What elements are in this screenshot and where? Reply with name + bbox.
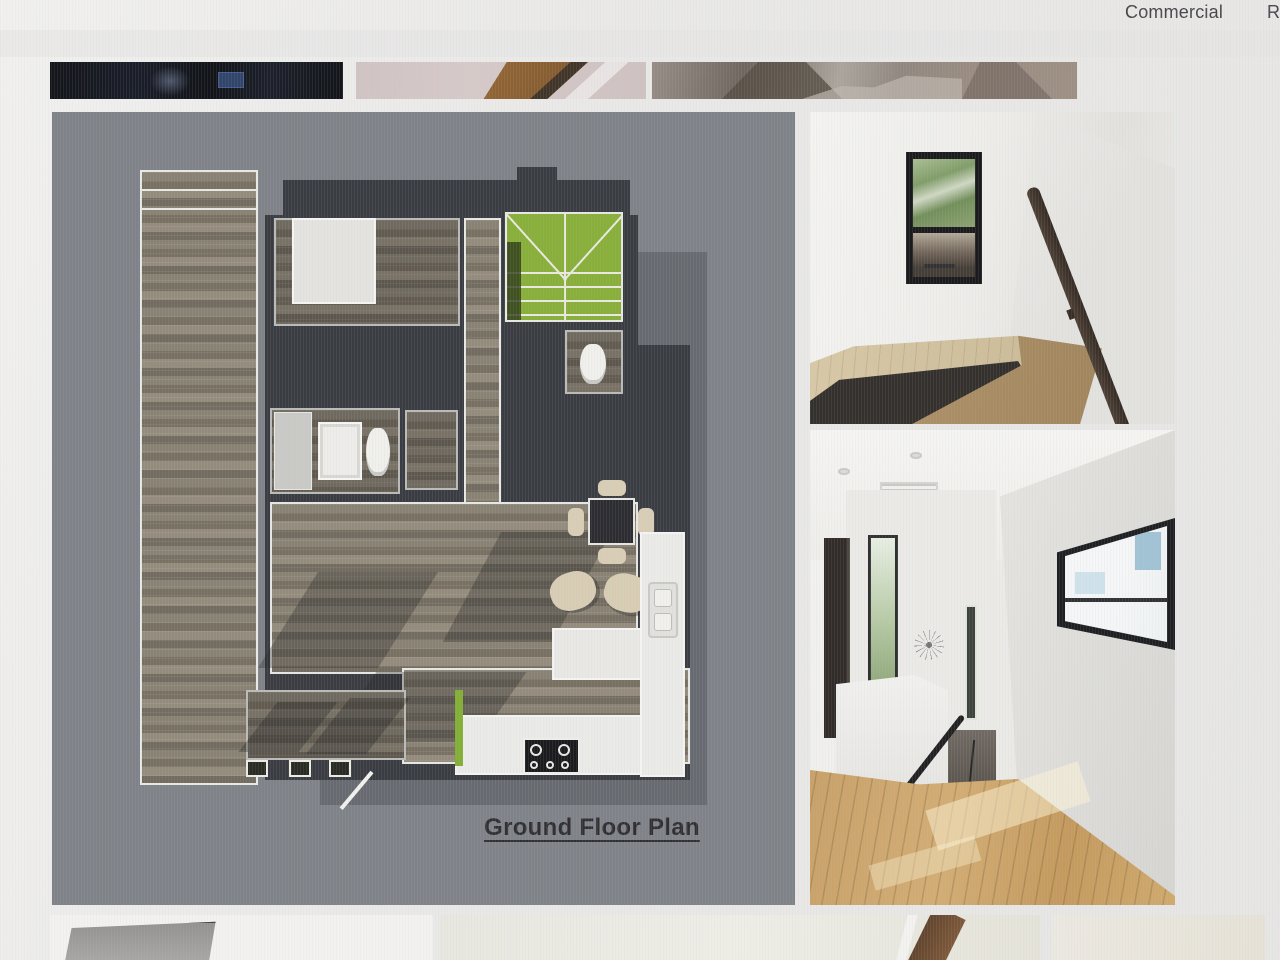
floor-plan-caption: Ground Floor Plan	[422, 814, 762, 842]
toilet	[366, 428, 390, 476]
slit-window	[965, 605, 977, 720]
porch-post	[329, 760, 351, 777]
kitchen-counter-right	[640, 532, 685, 777]
stair-winder-line	[563, 213, 623, 281]
thumbnail-highlight	[150, 66, 190, 96]
sputnik-chandelier	[914, 630, 944, 660]
porch-post	[289, 760, 311, 777]
thumbnail-blue-sign	[218, 72, 244, 88]
thumbnail-carpet-stairs[interactable]	[356, 62, 646, 99]
staircase	[505, 212, 623, 322]
photo-upstairs-hallway[interactable]	[810, 430, 1175, 905]
sink-basin	[654, 613, 672, 631]
porch	[246, 690, 406, 760]
kitchen-island	[552, 628, 650, 680]
window-pane-foliage	[913, 159, 975, 227]
header-band	[0, 30, 1280, 57]
photo-stair-landing[interactable]	[810, 112, 1175, 424]
hallway	[464, 218, 501, 510]
cooktop	[523, 738, 580, 774]
sink	[648, 582, 678, 638]
clerestory-mullion	[1065, 598, 1167, 602]
thumbnail-dark-interior[interactable]	[50, 62, 343, 99]
stair-shadow	[507, 242, 521, 320]
black-frame-window	[906, 152, 982, 284]
green-door	[455, 690, 463, 766]
recessed-light	[838, 468, 850, 475]
window-view-detail	[924, 264, 955, 268]
deck-joint	[142, 189, 256, 191]
nav-item-commercial[interactable]: Commercial	[1125, 2, 1223, 23]
top-navigation: Commercial Res	[1125, 2, 1280, 23]
thumbnail-interior-corner-partial[interactable]	[50, 915, 433, 960]
shower	[274, 412, 312, 490]
dining-chair	[598, 548, 626, 564]
dining-chair	[568, 508, 584, 536]
thumbnail-stairwell-top-view[interactable]	[652, 62, 1077, 99]
wall-corner-shape	[62, 921, 222, 960]
side-deck	[140, 170, 258, 785]
window-pane-lower	[913, 227, 975, 277]
closet	[405, 410, 458, 490]
floor-plan-image[interactable]: Ground Floor Plan	[52, 112, 795, 905]
porch-post	[246, 760, 268, 777]
stair-divider	[564, 214, 566, 320]
vanity	[318, 422, 362, 480]
sink-basin	[654, 589, 672, 607]
nav-item-residential-clipped[interactable]: Res	[1267, 2, 1280, 23]
recessed-light	[910, 452, 922, 459]
thumbnail-interior-wall-partial[interactable]	[1052, 915, 1265, 960]
thumbnail-stair-railing-partial[interactable]	[440, 915, 1040, 960]
toilet	[580, 344, 606, 384]
stair-dark-wedge	[962, 62, 1052, 99]
roof-tab	[517, 167, 557, 181]
tall-window	[868, 535, 898, 685]
deck-joint	[142, 208, 256, 210]
clerestory-sky-reflection	[1135, 532, 1161, 570]
clerestory-sky-reflection	[1075, 572, 1105, 594]
dining-table	[588, 498, 635, 545]
bed	[292, 218, 376, 304]
dining-chair	[598, 480, 626, 496]
